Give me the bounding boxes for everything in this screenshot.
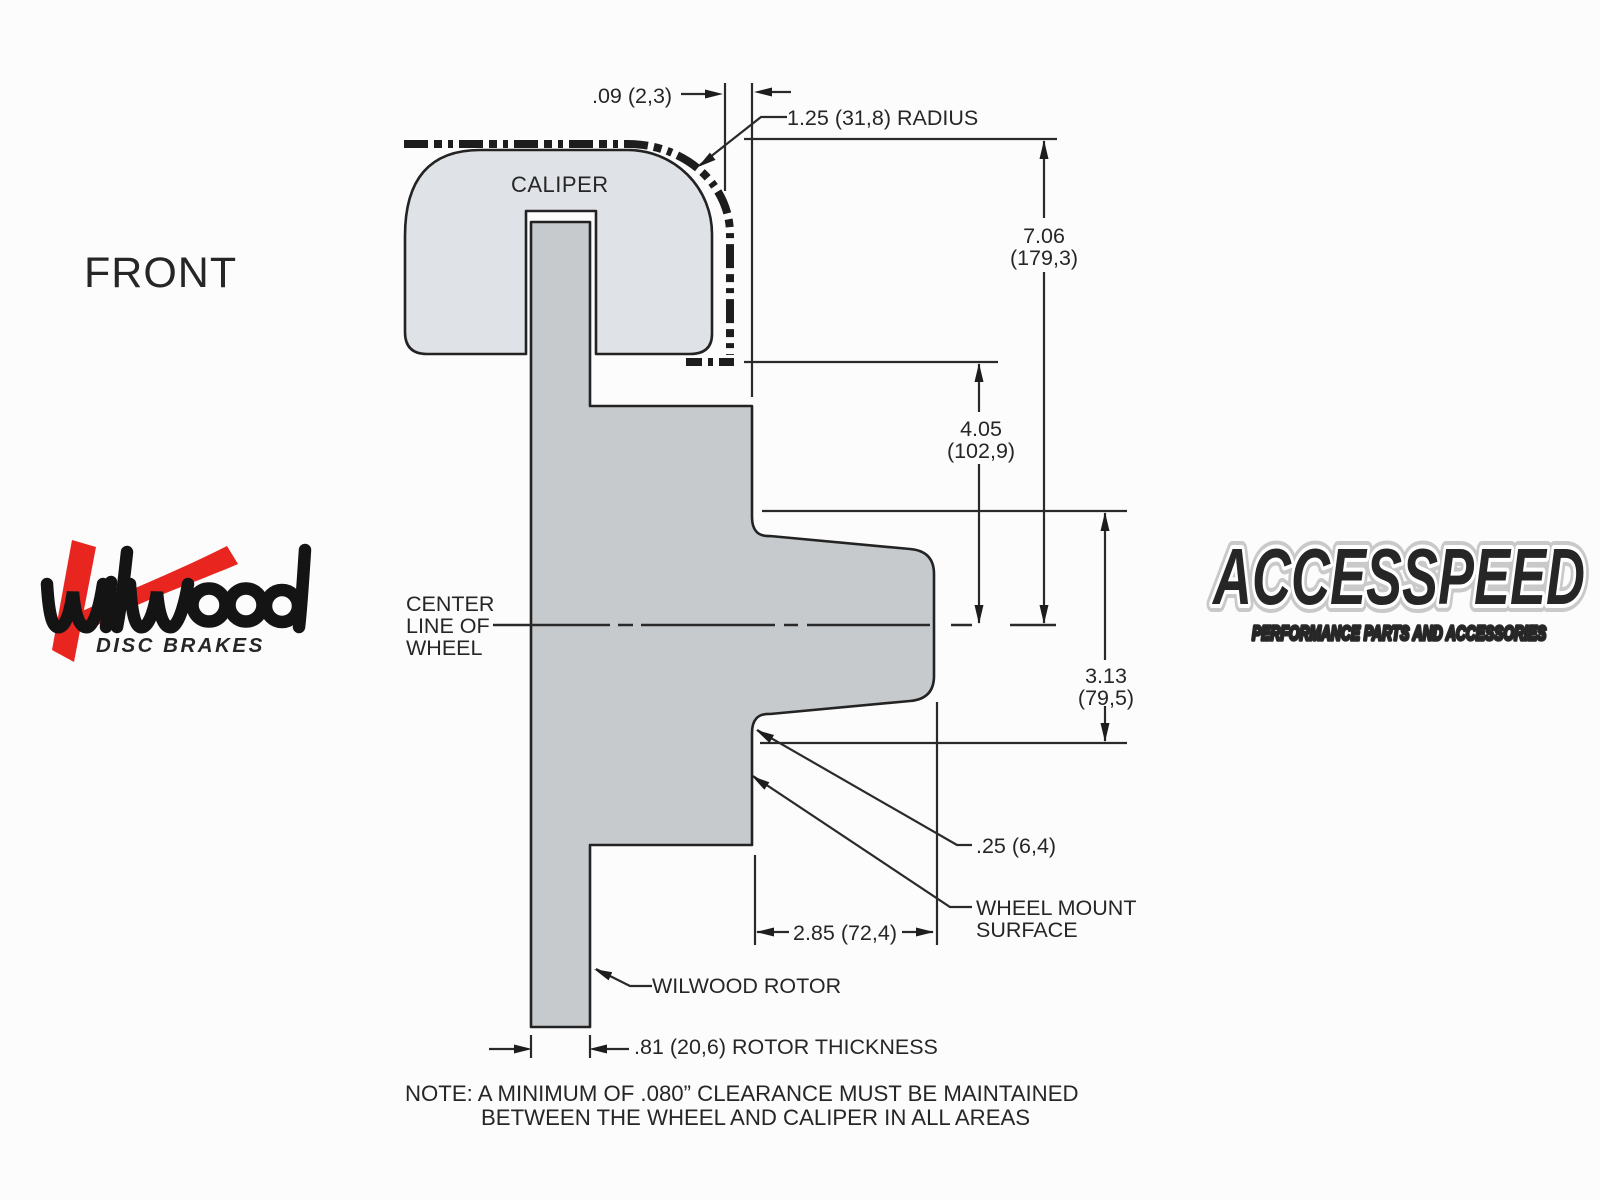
- svg-text:CENTER: CENTER: [406, 592, 494, 616]
- svg-text:WHEEL MOUNT: WHEEL MOUNT: [976, 896, 1136, 920]
- svg-text:FRONT: FRONT: [84, 249, 237, 297]
- svg-text:LINE OF: LINE OF: [406, 614, 490, 638]
- svg-text:7.06: 7.06: [1023, 224, 1065, 248]
- svg-text:ACCESSPEED: ACCESSPEED: [1211, 532, 1585, 621]
- svg-text:.81 (20,6) ROTOR THICKNESS: .81 (20,6) ROTOR THICKNESS: [634, 1035, 938, 1059]
- svg-text:1.25 (31,8) RADIUS: 1.25 (31,8) RADIUS: [787, 106, 978, 130]
- svg-text:PERFORMANCE PARTS AND ACCESSOR: PERFORMANCE PARTS AND ACCESSORIES: [1252, 621, 1547, 644]
- svg-text:2.85 (72,4): 2.85 (72,4): [793, 921, 897, 945]
- svg-text:(102,9): (102,9): [947, 439, 1015, 463]
- svg-text:.09 (2,3): .09 (2,3): [592, 84, 672, 108]
- svg-text:3.13: 3.13: [1085, 664, 1127, 688]
- svg-text:(179,3): (179,3): [1010, 246, 1078, 270]
- svg-text:DISC BRAKES: DISC BRAKES: [96, 634, 265, 657]
- svg-text:BETWEEN THE WHEEL AND CALIPER: BETWEEN THE WHEEL AND CALIPER IN ALL ARE…: [481, 1105, 1030, 1130]
- svg-text:WHEEL: WHEEL: [406, 636, 483, 660]
- svg-text:(79,5): (79,5): [1078, 686, 1134, 710]
- svg-text:4.05: 4.05: [960, 417, 1002, 441]
- svg-text:WILWOOD ROTOR: WILWOOD ROTOR: [652, 974, 841, 998]
- svg-text:CALIPER: CALIPER: [511, 172, 609, 197]
- svg-text:NOTE: A MINIMUM OF .080” CLEAR: NOTE: A MINIMUM OF .080” CLEARANCE MUST …: [405, 1081, 1079, 1106]
- svg-text:.25 (6,4): .25 (6,4): [976, 834, 1056, 858]
- svg-text:SURFACE: SURFACE: [976, 918, 1078, 942]
